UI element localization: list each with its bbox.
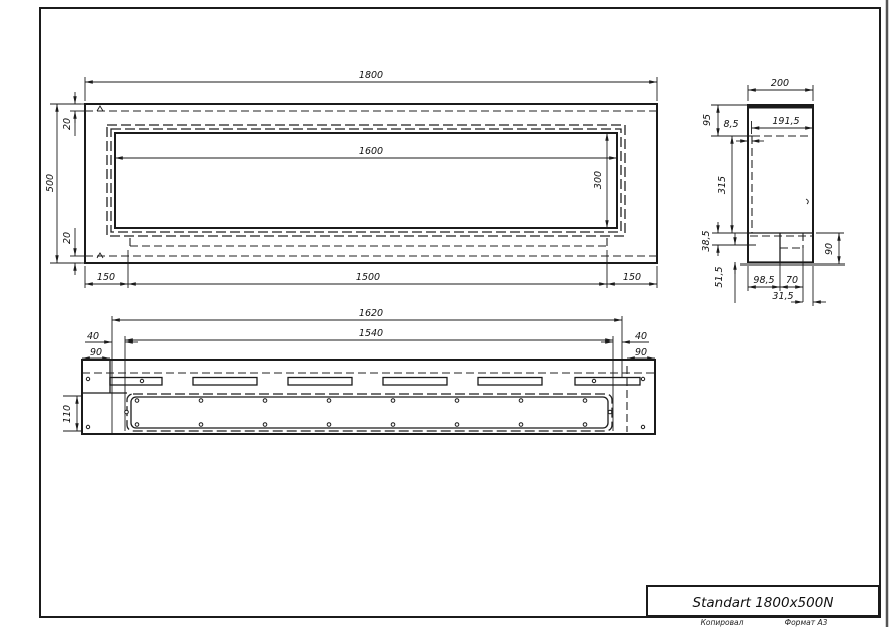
dim-left-offset: 150	[97, 272, 115, 283]
dim-bottom-wall: 20	[62, 232, 73, 244]
copied-label: Копировал	[701, 618, 744, 627]
dim-lip: 8,5	[723, 119, 738, 130]
dim-bottom-span: 1500	[356, 272, 380, 283]
title-block: Standart 1800x500N Копировал Формат А3	[647, 586, 879, 627]
dim-slot-span: 1620	[359, 308, 383, 319]
dim-inner-depth: 191,5	[772, 116, 799, 127]
dim-channel-span: 1540	[359, 328, 383, 339]
dim-base-front: 51,5	[714, 266, 725, 287]
sheet-border	[40, 8, 880, 617]
dim-base-depth: 98,5	[753, 275, 774, 286]
sheet-frame	[40, 0, 887, 627]
drawing-title: Standart 1800x500N	[693, 595, 834, 611]
dim-channel-width: 110	[62, 405, 73, 423]
dim-opening-height: 300	[593, 171, 604, 189]
dim-right-offset: 150	[623, 272, 641, 283]
format-label: Формат А3	[785, 618, 828, 627]
dim-left-gap: 40	[87, 331, 99, 342]
dim-rear-gap: 31,5	[772, 291, 793, 302]
burner-channel	[125, 394, 612, 431]
bottom-view: 1620 1540 40 90 40 90 110	[62, 308, 655, 434]
dim-step: 38,5	[701, 230, 712, 251]
front-body	[85, 104, 657, 263]
dim-top-section: 95	[702, 114, 713, 126]
dim-mid-height: 315	[717, 176, 728, 194]
dim-opening-width: 1600	[359, 146, 383, 157]
drawing-sheet: 1800 500 20 20 150 1500 150 1600	[0, 0, 892, 627]
dim-overall-height: 500	[45, 174, 56, 192]
drawing-canvas: 1800 500 20 20 150 1500 150 1600	[0, 0, 892, 627]
weld-mark	[806, 199, 808, 204]
weld-mark	[97, 106, 103, 111]
dim-overall-width: 1800	[359, 70, 383, 81]
dim-left-flange: 90	[90, 347, 102, 358]
air-slots	[110, 378, 640, 386]
dim-burner-offset: 70	[786, 275, 798, 286]
dim-right-flange: 90	[635, 347, 647, 358]
dim-depth: 200	[771, 78, 789, 89]
front-view: 1800 500 20 20 150 1500 150 1600	[45, 70, 657, 288]
dim-base-height: 90	[824, 243, 835, 255]
side-view: 200 191,5 95 8,5 315 38,5 51,5 90	[701, 78, 845, 306]
dim-right-gap: 40	[635, 331, 647, 342]
dim-top-wall: 20	[62, 118, 73, 130]
